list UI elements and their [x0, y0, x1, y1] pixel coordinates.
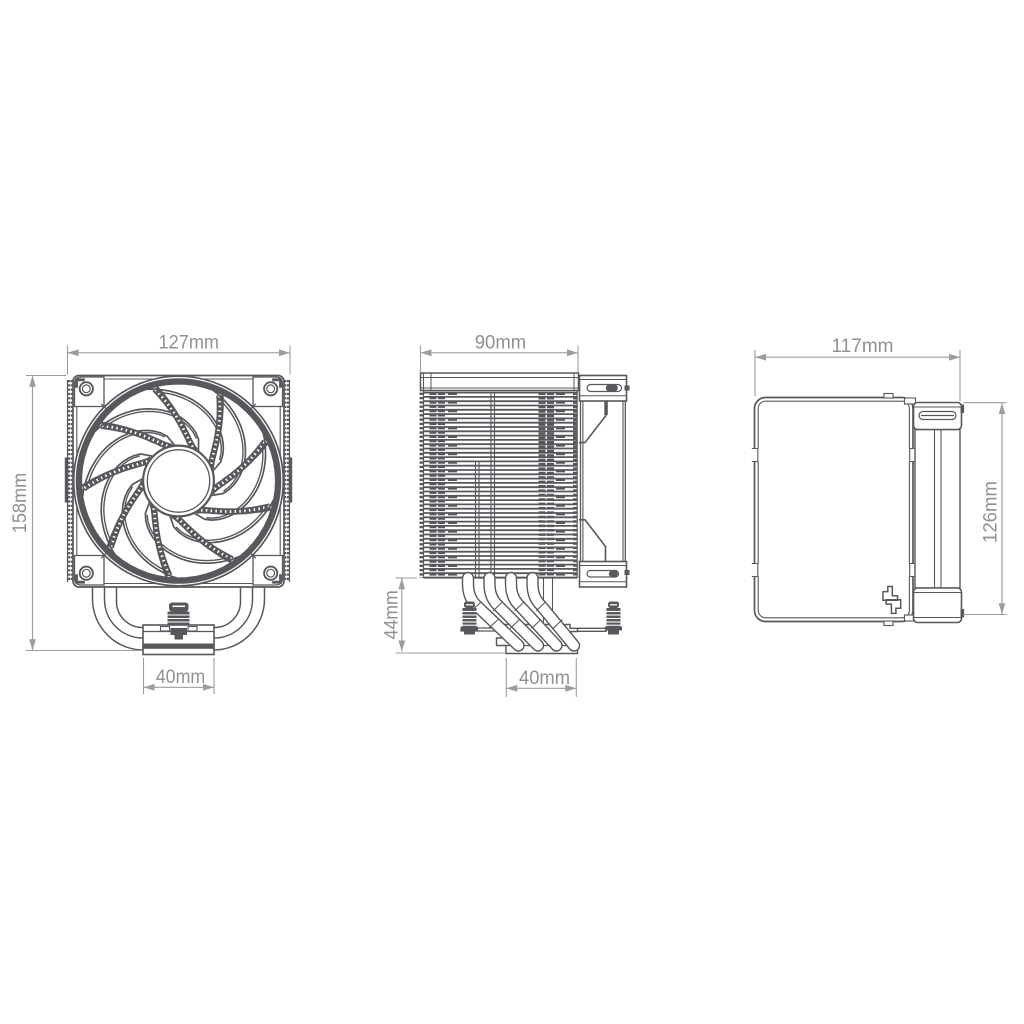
- svg-text:40mm: 40mm: [519, 667, 570, 689]
- svg-text:40mm: 40mm: [156, 666, 206, 688]
- svg-text:90mm: 90mm: [475, 332, 527, 354]
- svg-text:126mm: 126mm: [979, 481, 1001, 543]
- svg-text:44mm: 44mm: [381, 590, 403, 639]
- svg-text:127mm: 127mm: [159, 332, 220, 354]
- svg-text:158mm: 158mm: [9, 473, 31, 534]
- svg-text:117mm: 117mm: [832, 335, 894, 357]
